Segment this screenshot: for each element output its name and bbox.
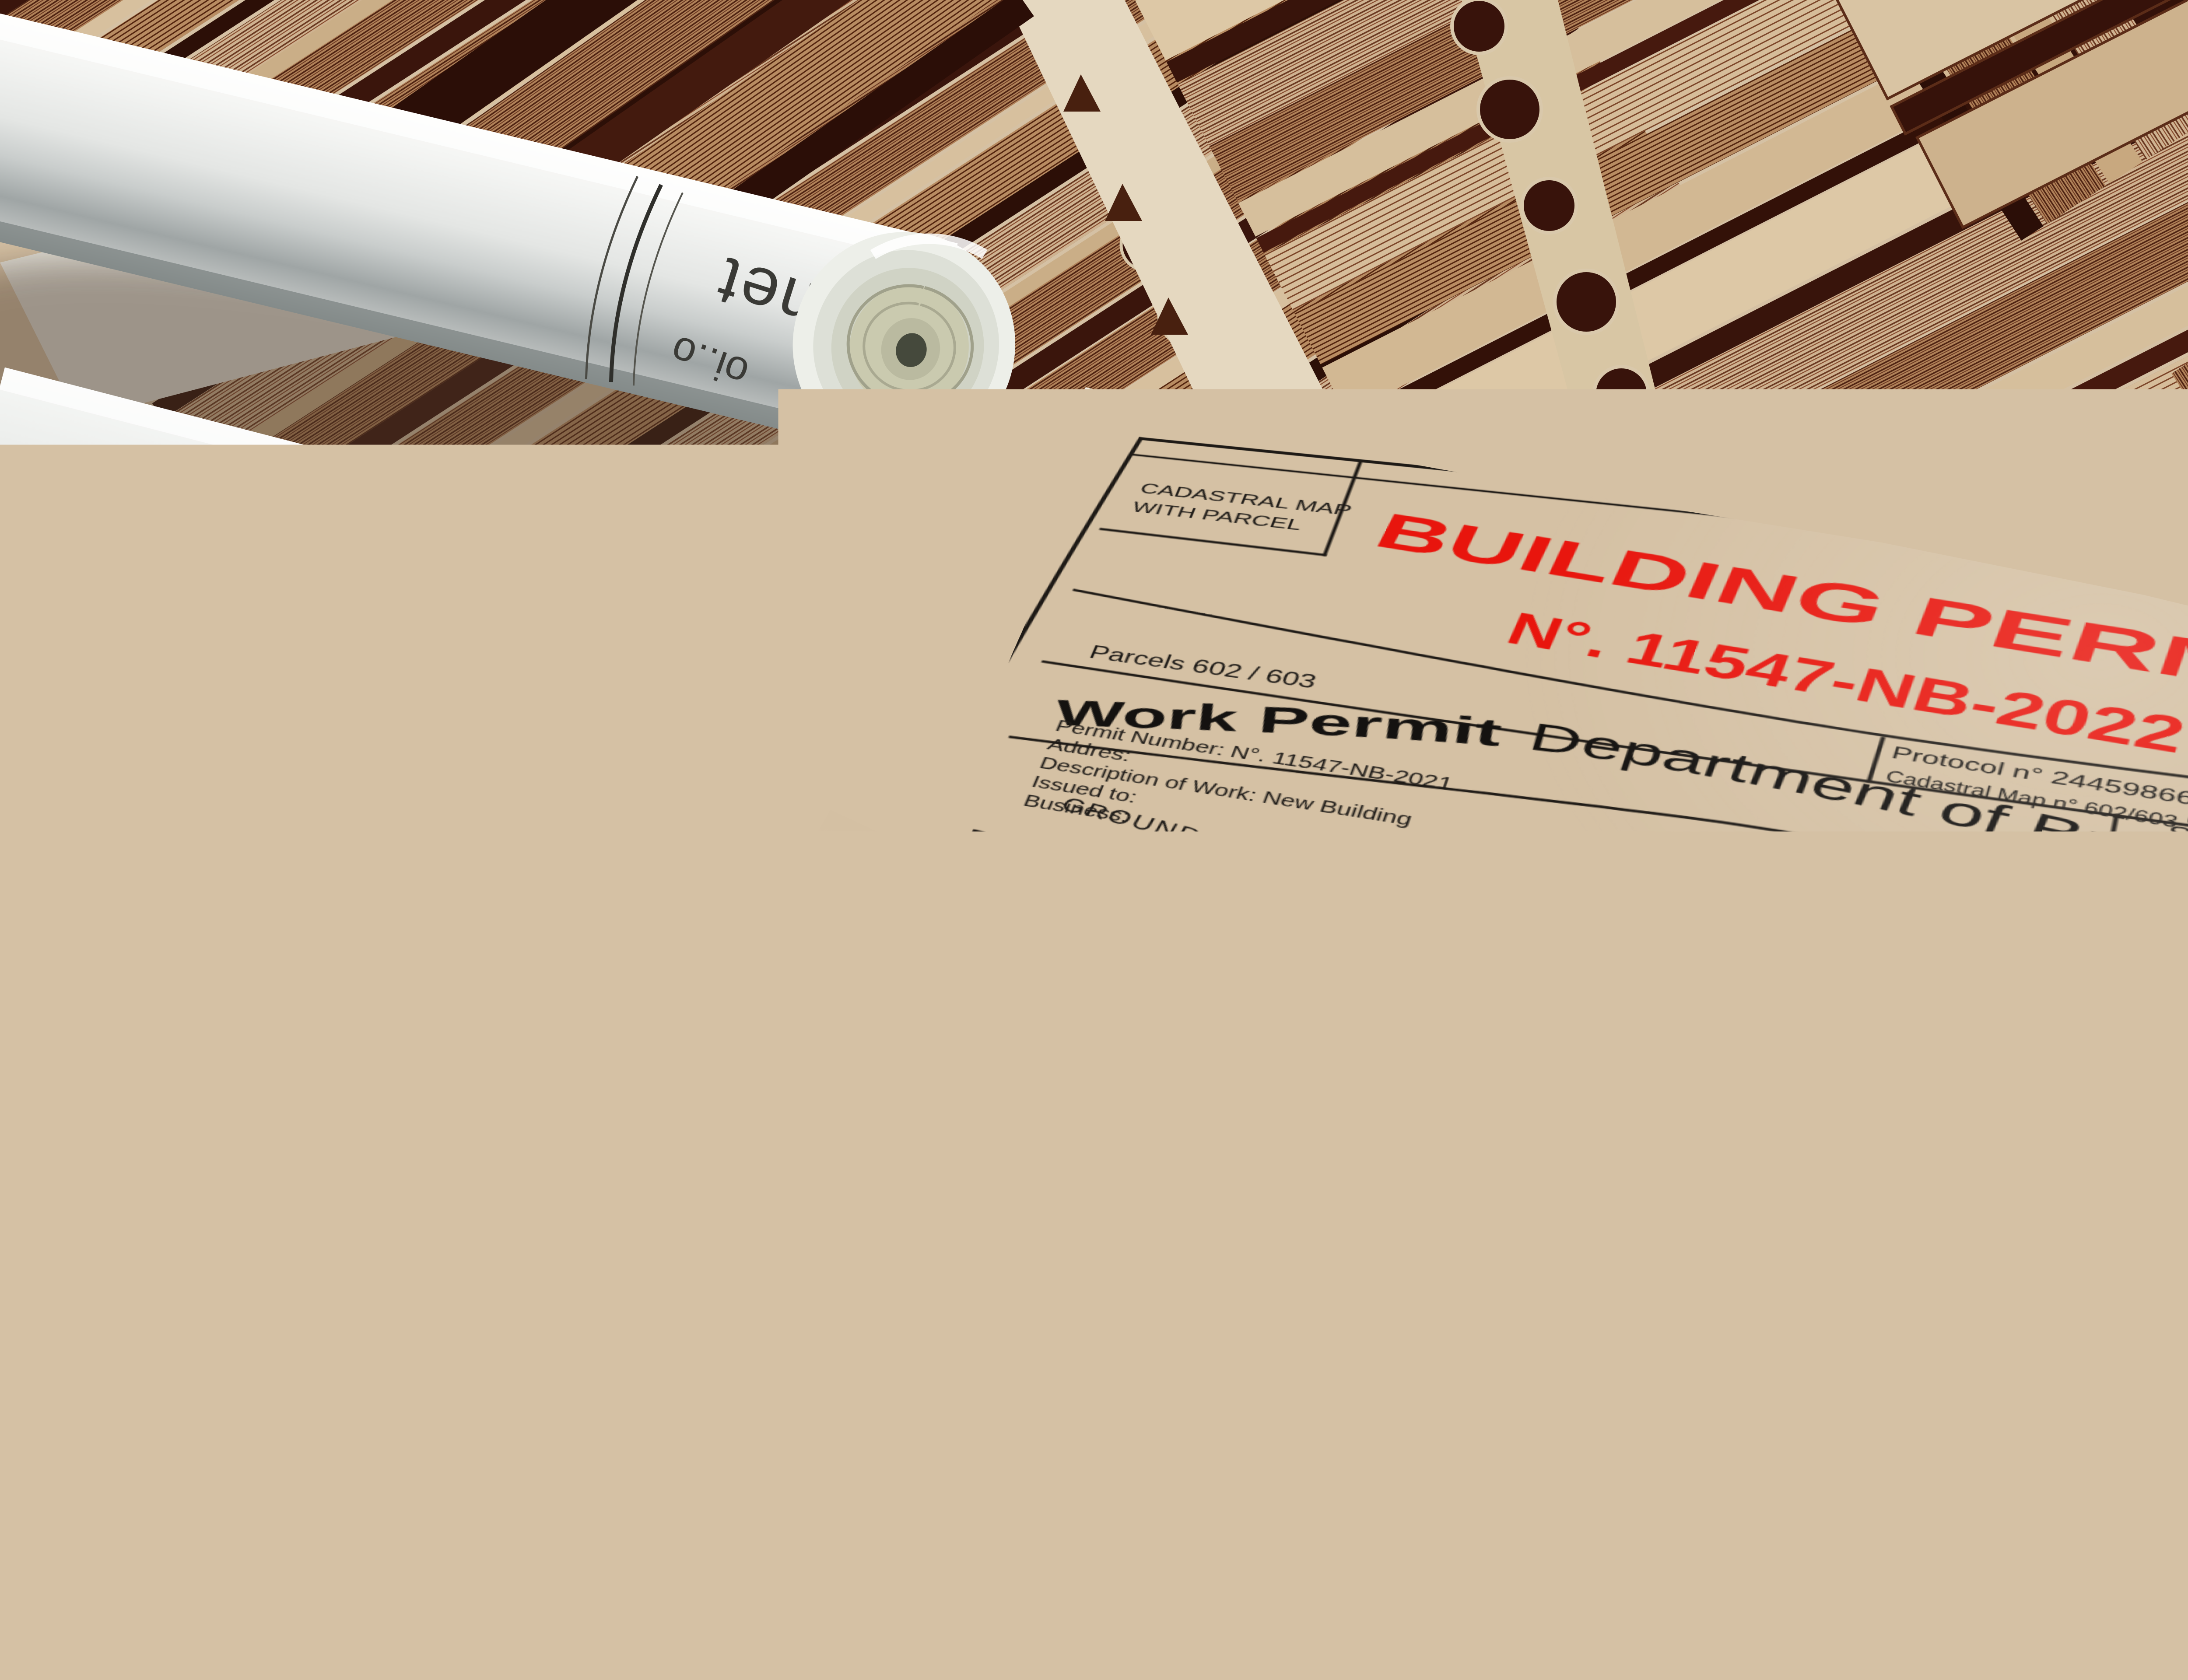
svg-text:460: 460 [1444, 1171, 1469, 1197]
svg-text:360: 360 [2111, 1140, 2138, 1156]
svg-text:225: 225 [2134, 1170, 2160, 1186]
svg-text:Bedroom: Bedroom [2071, 979, 2176, 1018]
svg-text:255: 255 [1957, 1201, 1985, 1218]
svg-text:living room: living room [1560, 1160, 1728, 1201]
svg-text:490: 490 [1495, 876, 1521, 906]
svg-text:closet: closet [1834, 977, 1859, 1021]
svg-text:410: 410 [1871, 1269, 1893, 1292]
svg-text:545: 545 [2166, 1256, 2185, 1278]
svg-text:living room: living room [1953, 1243, 2090, 1277]
svg-text:500: 500 [2019, 1330, 2046, 1345]
svg-text:255: 255 [1469, 1000, 1494, 1028]
svg-text:515: 515 [1582, 1253, 1615, 1270]
svg-text:Bedroom: Bedroom [2041, 1100, 2146, 1135]
svg-text:380: 380 [1565, 1046, 1599, 1066]
svg-text:hallway: hallway [1714, 979, 1742, 1034]
svg-text:stairwell: stairwell [1818, 1104, 1862, 1194]
